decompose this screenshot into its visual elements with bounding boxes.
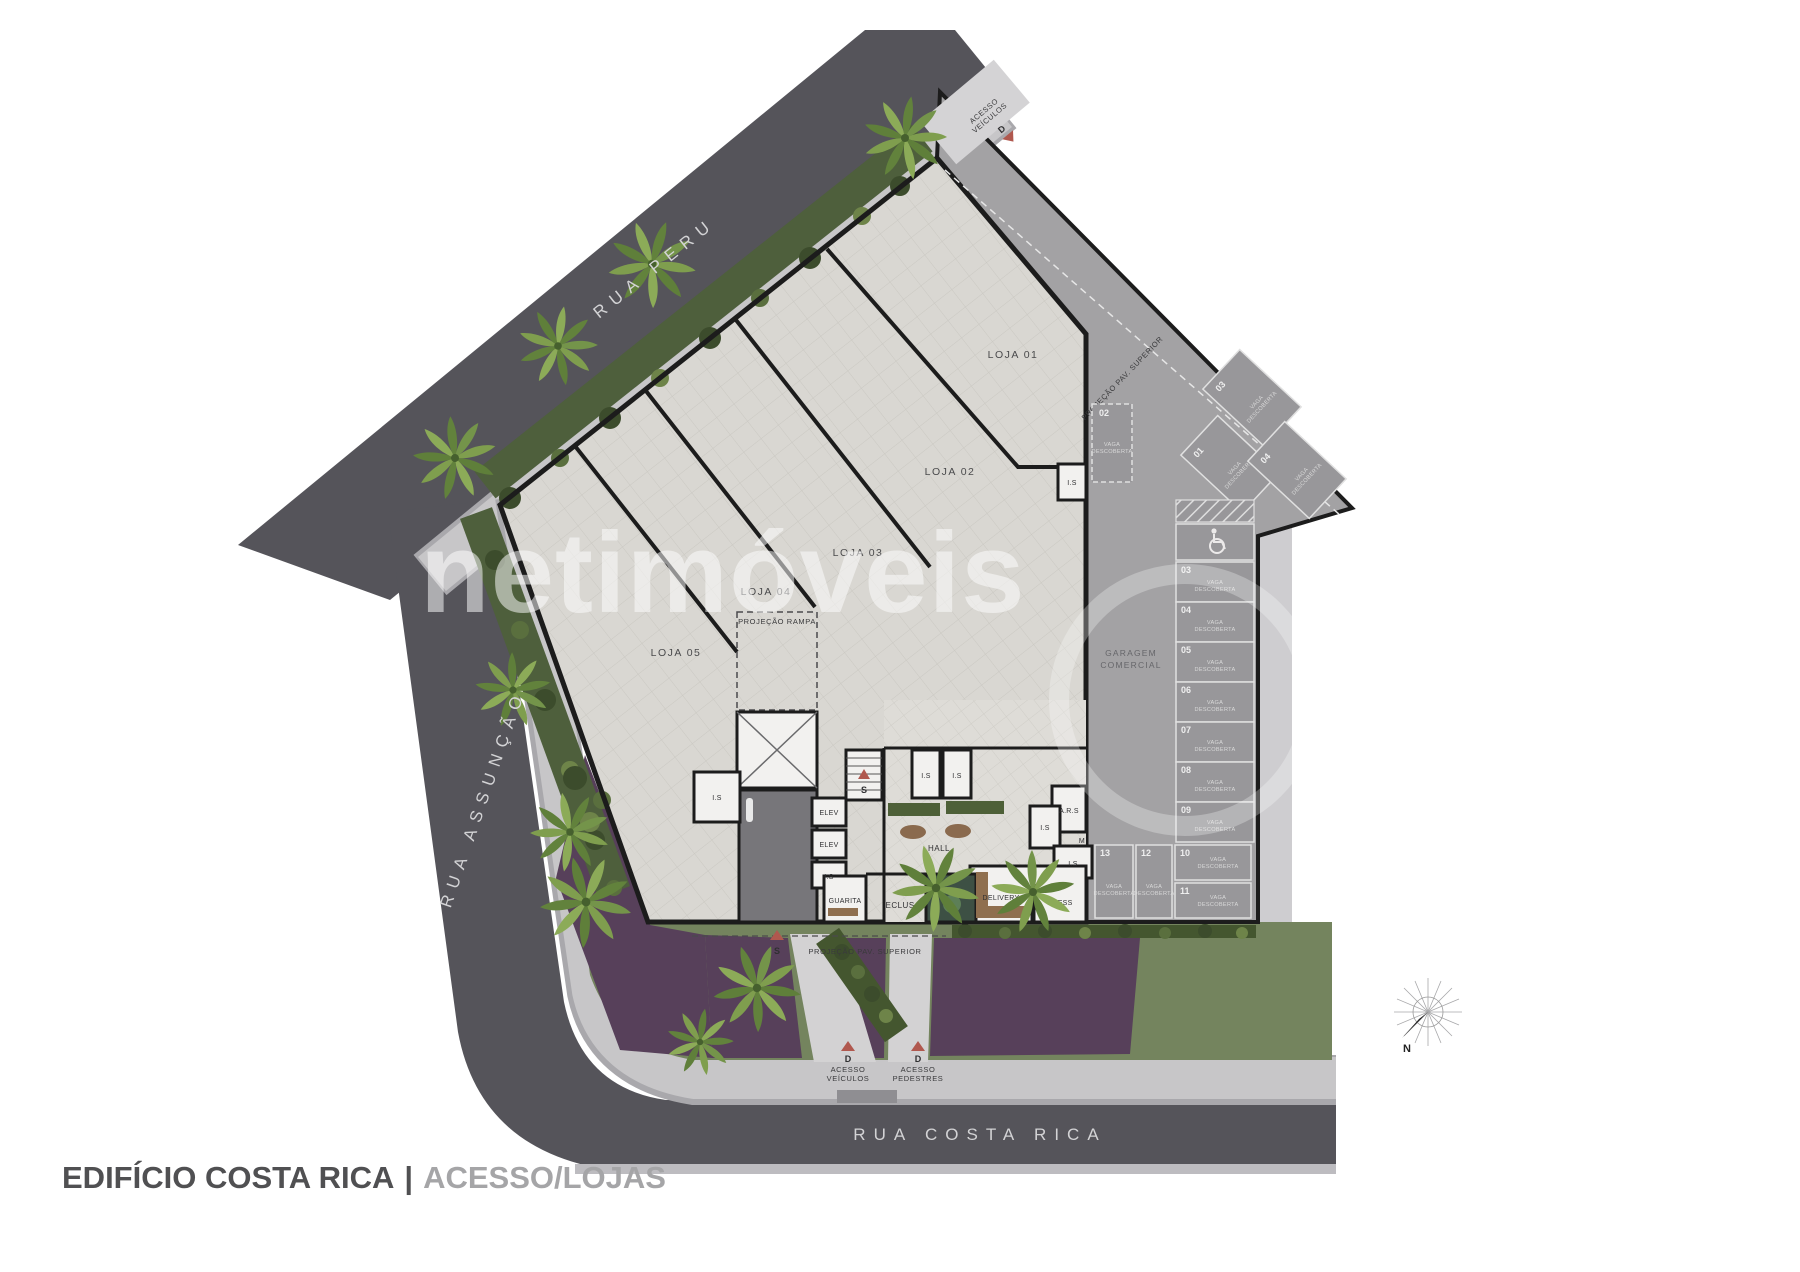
svg-text:13: 13 — [1100, 848, 1110, 858]
compass-north-label: N — [1403, 1043, 1411, 1055]
svg-text:VAGA: VAGA — [1207, 780, 1223, 786]
accessible-stall — [1176, 524, 1254, 560]
label-elev-1: ELEV — [819, 810, 838, 817]
svg-text:ACESSO: ACESSO — [901, 1065, 936, 1074]
stair-s-label: S — [861, 785, 867, 795]
svg-text:DESCOBERTA: DESCOBERTA — [1133, 891, 1174, 897]
svg-text:D: D — [845, 1054, 852, 1064]
svg-text:PEDESTRES: PEDESTRES — [893, 1074, 944, 1083]
svg-text:VAGA: VAGA — [1207, 660, 1223, 666]
svg-text:DESCOBERTA: DESCOBERTA — [1194, 747, 1235, 753]
label-is-core: I.S — [824, 874, 833, 881]
svg-text:DESCOBERTA: DESCOBERTA — [1093, 891, 1134, 897]
svg-text:VAGA: VAGA — [1207, 740, 1223, 746]
label-is-west: I.S — [712, 795, 721, 802]
stall-col-08: 08 VAGA DESCOBERTA — [1176, 762, 1254, 802]
stall-column: 03 VAGA DESCOBERTA 04 VAGA DESCOBERTA 05… — [1176, 562, 1254, 842]
label-garagem-2: COMERCIAL — [1100, 660, 1161, 670]
stall-10: 10 VAGA DESCOBERTA — [1175, 845, 1251, 880]
svg-text:05: 05 — [1181, 645, 1191, 655]
svg-text:DESCOBERTA: DESCOBERTA — [1197, 864, 1238, 870]
ramp-down — [739, 790, 817, 922]
svg-text:VAGA: VAGA — [1207, 700, 1223, 706]
label-is-loja1: I.S — [1067, 480, 1076, 487]
svg-text:VAGA: VAGA — [1207, 620, 1223, 626]
far-curb-strip — [575, 1164, 1336, 1174]
label-loja-05: LOJA 05 — [651, 647, 702, 659]
svg-text:DESCOBERTA: DESCOBERTA — [1194, 707, 1235, 713]
hall-planter-2 — [946, 801, 1004, 814]
stall-02: 02 VAGA DESCOBERTA — [1091, 404, 1132, 482]
watermark-text: netimóveis — [420, 510, 1026, 637]
accessible-hatch-strip — [1176, 500, 1254, 522]
svg-text:VAGA: VAGA — [1146, 884, 1162, 890]
stall-col-07: 07 VAGA DESCOBERTA — [1176, 722, 1254, 762]
svg-text:11: 11 — [1180, 886, 1190, 896]
svg-text:06: 06 — [1181, 685, 1191, 695]
svg-text:DESCOBERTA: DESCOBERTA — [1194, 667, 1235, 673]
svg-text:VAGA: VAGA — [1104, 442, 1120, 448]
hall-table-1 — [900, 825, 926, 839]
site-plan-canvas: PROJEÇÃO RAMPA — [0, 0, 1800, 1272]
svg-text:ACESSO: ACESSO — [831, 1065, 866, 1074]
label-elev-2: ELEV — [819, 842, 838, 849]
label-loja-02: LOJA 02 — [925, 466, 976, 478]
skylight-box — [737, 712, 817, 788]
title-view: ACESSO/LOJAS — [423, 1160, 666, 1195]
site-plan-page: PROJEÇÃO RAMPA — [0, 0, 1800, 1272]
east-neighbor-strip — [1258, 515, 1292, 925]
title-project: EDIFÍCIO COSTA RICA — [62, 1160, 394, 1195]
hall-planter-1 — [888, 803, 940, 816]
svg-text:DESCOBERTA: DESCOBERTA — [1194, 787, 1235, 793]
svg-text:12: 12 — [1141, 848, 1151, 858]
stall-02-num: 02 — [1099, 408, 1109, 418]
hall-table-2 — [945, 824, 971, 838]
title-divider: | — [394, 1160, 423, 1195]
plan-title: EDIFÍCIO COSTA RICA|ACESSO/LOJAS — [62, 1160, 666, 1196]
svg-text:07: 07 — [1181, 725, 1191, 735]
label-is-hall-2: I.S — [952, 773, 961, 780]
stall-13: 13 VAGA DESCOBERTA — [1093, 845, 1134, 918]
svg-text:VAGA: VAGA — [1210, 895, 1226, 901]
stall-col-04: 04 VAGA DESCOBERTA — [1176, 602, 1254, 642]
label-loja-01: LOJA 01 — [988, 349, 1039, 361]
svg-text:VAGA: VAGA — [1210, 857, 1226, 863]
stall-12: 12 VAGA DESCOBERTA — [1133, 845, 1174, 918]
svg-text:08: 08 — [1181, 765, 1191, 775]
label-is-east-1: I.S — [1040, 825, 1049, 832]
svg-text:VAGA: VAGA — [1106, 884, 1122, 890]
label-is-hall-1: I.S — [921, 773, 930, 780]
label-projecao-pav-superior: PROJEÇÃO PAV. SUPERIOR — [808, 947, 921, 956]
svg-text:DESCOBERTA: DESCOBERTA — [1197, 902, 1238, 908]
label-rua-costa-rica: RUA COSTA RICA — [853, 1125, 1106, 1144]
label-is-east-2: I.S — [1068, 861, 1077, 868]
svg-text:10: 10 — [1180, 848, 1190, 858]
stall-col-06: 06 VAGA DESCOBERTA — [1176, 682, 1254, 722]
stall-col-05: 05 VAGA DESCOBERTA — [1176, 642, 1254, 682]
label-m: M — [1079, 838, 1085, 845]
stall-11: 11 VAGA DESCOBERTA — [1175, 883, 1251, 918]
svg-text:DESCOBERTA: DESCOBERTA — [1194, 627, 1235, 633]
driveway-curb-cut — [837, 1090, 897, 1103]
svg-text:D: D — [915, 1054, 922, 1064]
svg-text:04: 04 — [1181, 605, 1191, 615]
label-guarita: GUARITA — [829, 898, 862, 905]
svg-text:VEÍCULOS: VEÍCULOS — [827, 1074, 870, 1083]
label-ars: A.R.S — [1059, 808, 1079, 815]
label-garagem-1: GARAGEM — [1105, 648, 1157, 658]
svg-text:09: 09 — [1181, 805, 1191, 815]
south-s-label: S — [774, 946, 780, 956]
label-hall: HALL — [928, 844, 950, 853]
svg-text:DESCOBERTA: DESCOBERTA — [1091, 449, 1132, 455]
guarita-desk — [828, 908, 858, 916]
